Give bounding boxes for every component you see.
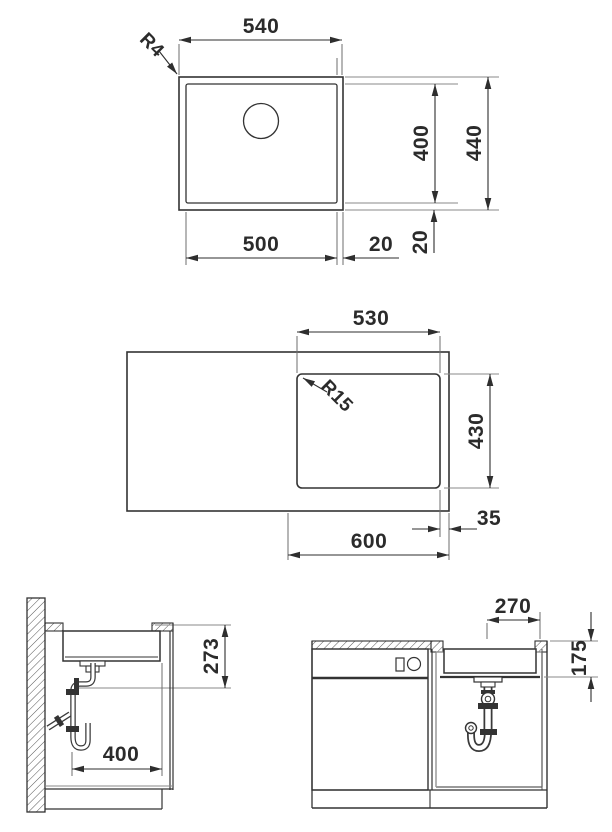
dishwasher-knob-icon [408,658,421,671]
wall-section [27,598,45,812]
cutout-width-label: 530 [353,307,390,330]
side-pipe-nut [66,689,79,695]
front-trap-outlet-cap [466,723,477,734]
plan-overall-depth-label: 440 [463,125,486,162]
side-pipe-nut [74,678,79,689]
cutout-edge-offset-label: 35 [477,507,501,530]
side-bowl-depth-label: 400 [103,743,140,766]
plan-view: 540 R4 400 440 500 20 20 [135,15,499,265]
front-worktop-tab-right [535,641,547,652]
worktop-outline [127,352,449,511]
drain-height-label: 273 [200,638,223,675]
dishwasher-display-icon [396,658,404,671]
front-worktop-tab-left [431,641,443,652]
front-bowl [444,649,536,673]
plan-gap-right-label: 20 [369,233,393,256]
front-view: 270 175 [312,595,598,808]
bowl-height-label: 175 [568,640,591,677]
plan-sink-outline [179,77,343,210]
cabinet-width-label: 600 [351,530,388,553]
side-worktop-right [152,623,173,631]
cutout-view: 530 R15 430 35 600 [127,307,501,560]
technical-drawing-page: 540 R4 400 440 500 20 20 [0,0,612,832]
plan-bowl-depth-label: 400 [410,125,433,162]
side-pipe-nut [66,726,79,732]
plan-gap-bottom-label: 20 [409,230,432,254]
front-drain-body [481,682,495,687]
front-pipe-nut [480,729,497,735]
plan-width-label: 540 [243,15,280,38]
sink-drawing-svg: 540 R4 400 440 500 20 20 [0,0,612,832]
front-drain-flange [474,677,502,682]
front-worktop-left [312,641,431,649]
dishwasher-front [312,649,428,790]
drain-offset-label: 270 [495,595,532,618]
plan-bowl-width-label: 500 [243,233,280,256]
side-trap-pipes [48,663,93,748]
side-worktop-left [45,623,63,631]
cutout-depth-label: 430 [465,413,488,450]
front-pipe-nut [478,703,498,709]
side-section-view: 273 400 [27,598,231,812]
front-trap-pipes [466,677,503,748]
